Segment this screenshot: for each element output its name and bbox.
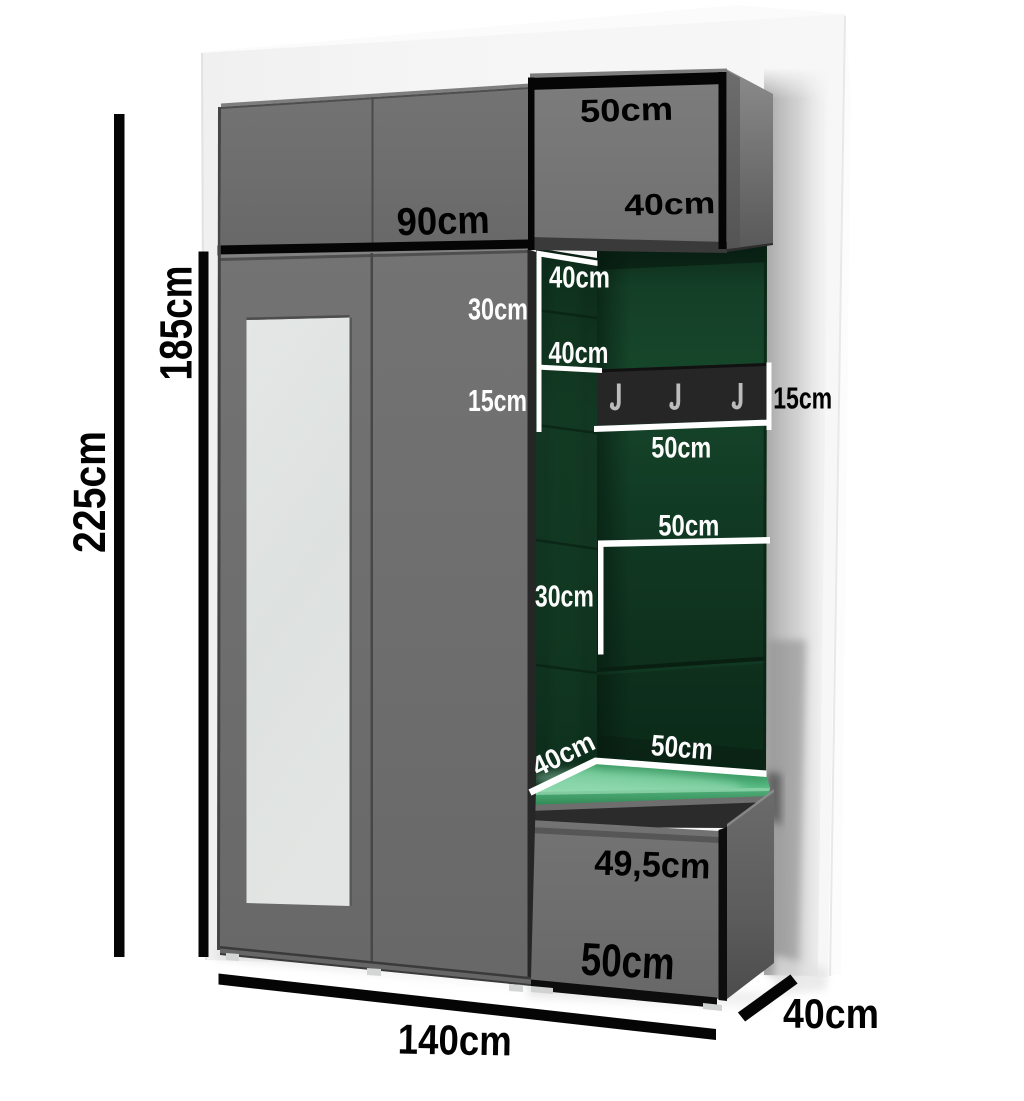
svg-text:15cm: 15cm [773,381,832,416]
svg-text:50cm: 50cm [580,933,677,990]
svg-text:40cm: 40cm [549,336,609,370]
svg-text:50cm: 50cm [651,431,711,464]
svg-text:40cm: 40cm [783,990,879,1037]
svg-text:30cm: 30cm [535,579,594,613]
svg-text:225cm: 225cm [64,431,115,553]
svg-text:90cm: 90cm [396,199,490,244]
svg-text:30cm: 30cm [468,293,528,327]
svg-text:185cm: 185cm [151,266,202,381]
svg-text:50cm: 50cm [658,509,719,542]
svg-text:15cm: 15cm [468,384,527,418]
svg-text:50cm: 50cm [650,729,714,767]
svg-text:49,5cm: 49,5cm [594,842,711,886]
svg-text:40cm: 40cm [549,261,610,295]
svg-text:50cm: 50cm [580,91,674,129]
svg-text:40cm: 40cm [624,187,716,222]
svg-text:140cm: 140cm [397,1016,512,1065]
